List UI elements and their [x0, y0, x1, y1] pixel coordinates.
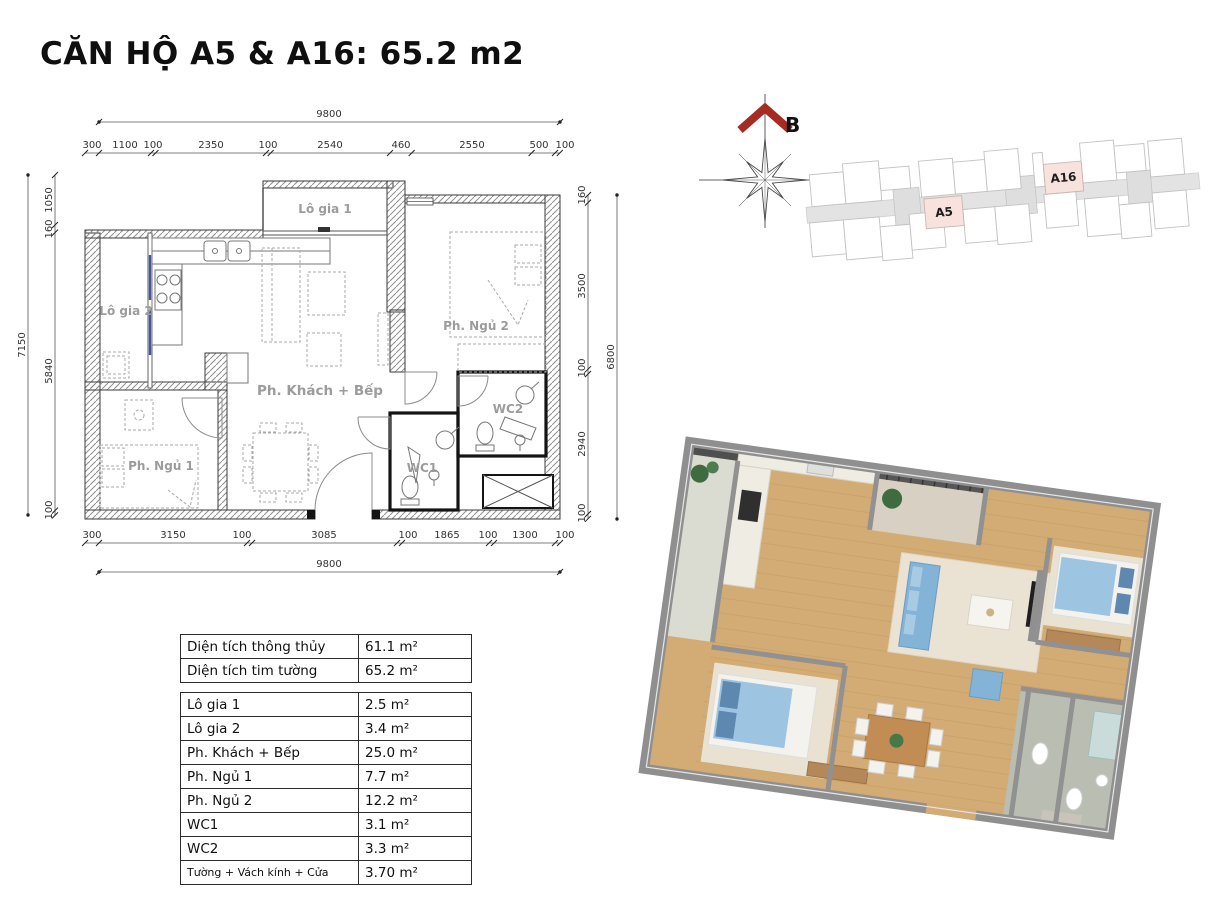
coffee-table [308, 272, 345, 315]
counter-island [227, 353, 248, 383]
area-value: 3.70 m² [359, 861, 472, 885]
slider-handle [318, 227, 330, 232]
svg-text:100: 100 [44, 500, 55, 519]
svg-text:1050: 1050 [44, 187, 55, 212]
svg-text:6800: 6800 [606, 344, 617, 369]
svg-text:7150: 7150 [18, 332, 28, 357]
svg-text:100: 100 [555, 140, 574, 151]
wardrobe [458, 344, 546, 372]
blanket-fold [168, 480, 196, 507]
area-value: 65.2 m² [359, 659, 472, 683]
area-value: 25.0 m² [359, 741, 472, 765]
area-value: 2.5 m² [359, 693, 472, 717]
room-label-wc1: WC1 [407, 461, 437, 475]
dim-top: 9800 300 1100 100 2350 100 2540 460 2550… [82, 109, 575, 156]
svg-text:2550: 2550 [459, 140, 484, 151]
kitchen [152, 238, 330, 383]
svg-text:5840: 5840 [44, 358, 55, 383]
area-label: Lô gia 2 [181, 717, 359, 741]
table-row: Diện tích thông thủy 61.1 m² [181, 635, 472, 659]
pillow [515, 267, 541, 285]
bed1-door [182, 398, 222, 438]
svg-text:100: 100 [478, 530, 497, 541]
svg-text:3085: 3085 [311, 530, 336, 541]
table-row: Lô gia 1 2.5 m² [181, 693, 472, 717]
svg-text:1100: 1100 [112, 140, 137, 151]
svg-text:3150: 3150 [160, 530, 185, 541]
bed2-door [405, 372, 437, 404]
area-label: WC2 [181, 837, 359, 861]
svg-text:460: 460 [391, 140, 410, 151]
area-label: Ph. Ngủ 2 [181, 789, 359, 813]
svg-text:2940: 2940 [577, 431, 588, 456]
svg-text:3500: 3500 [577, 273, 588, 298]
door-stop [307, 510, 315, 519]
area-value: 61.1 m² [359, 635, 472, 659]
area-label: Tường + Vách kính + Cửa [181, 861, 359, 885]
room-label-logia2: Lô gia 2 [99, 304, 152, 318]
room-label-wc2: WC2 [493, 402, 523, 416]
area-value: 7.7 m² [359, 765, 472, 789]
pillow [102, 448, 124, 466]
armchair [307, 333, 341, 366]
area-value: 12.2 m² [359, 789, 472, 813]
wc2-door [458, 376, 488, 406]
dining-table [253, 433, 308, 491]
door-stop [372, 510, 380, 519]
svg-text:100: 100 [398, 530, 417, 541]
area-value: 3.3 m² [359, 837, 472, 861]
room-label-logia1: Lô gia 1 [298, 202, 351, 216]
room-label-bed2: Ph. Ngủ 2 [443, 319, 509, 333]
tv [378, 313, 388, 365]
sink-basin [228, 241, 250, 261]
svg-text:2350: 2350 [198, 140, 223, 151]
area-label: Ph. Ngủ 1 [181, 765, 359, 789]
svg-text:160: 160 [577, 185, 588, 204]
svg-text:100: 100 [258, 140, 277, 151]
unit-a5-label: A5 [935, 204, 954, 219]
table-row: WC2 3.3 m² [181, 837, 472, 861]
table-row: Tường + Vách kính + Cửa 3.70 m² [181, 861, 472, 885]
area-value: 3.4 m² [359, 717, 472, 741]
wet-rooms [390, 372, 553, 510]
floor-plan-2d: 9800 300 1100 100 2350 100 2540 460 2550… [18, 95, 643, 605]
sink-basin [204, 241, 226, 261]
svg-text:500: 500 [529, 140, 548, 151]
cooktop [738, 490, 762, 522]
svg-text:300: 300 [82, 530, 101, 541]
site-plan: A5 A16 [798, 128, 1209, 273]
svg-text:100: 100 [232, 530, 251, 541]
area-label: Ph. Khách + Bếp [181, 741, 359, 765]
room-label-bed1: Ph. Ngủ 1 [128, 459, 194, 473]
bath-screen-wc2 [500, 417, 536, 440]
pillow [515, 245, 541, 263]
page-title: CĂN HỘ A5 & A16: 65.2 m2 [40, 36, 524, 72]
wc1-door [358, 417, 390, 449]
area-label: Diện tích tim tường [181, 659, 359, 683]
area-summary-table: Diện tích thông thủy 61.1 m² Diện tích t… [180, 634, 472, 683]
toilet-wc2 [477, 422, 493, 444]
svg-text:2540: 2540 [317, 140, 342, 151]
room-label-living: Ph. Khách + Bếp [257, 382, 383, 399]
armchair-3d [969, 669, 1003, 701]
svg-text:160: 160 [44, 219, 55, 238]
svg-text:1300: 1300 [512, 530, 537, 541]
entrance-door [315, 453, 372, 510]
svg-text:100: 100 [577, 503, 588, 522]
page: CĂN HỘ A5 & A16: 65.2 m2 9800 300 1100 1… [0, 0, 1209, 910]
area-value: 3.1 m² [359, 813, 472, 837]
table-row: Diện tích tim tường 65.2 m² [181, 659, 472, 683]
svg-text:100: 100 [577, 358, 588, 377]
table-row: Ph. Ngủ 2 12.2 m² [181, 789, 472, 813]
svg-text:9800: 9800 [316, 559, 341, 570]
pillow [102, 469, 124, 487]
area-rooms-table: Lô gia 1 2.5 m² Lô gia 2 3.4 m² Ph. Khác… [180, 692, 472, 885]
area-label: Diện tích thông thủy [181, 635, 359, 659]
svg-text:300: 300 [82, 140, 101, 151]
desk [125, 400, 153, 430]
svg-text:100: 100 [143, 140, 162, 151]
area-table: Diện tích thông thủy 61.1 m² Diện tích t… [180, 634, 472, 885]
dim-bottom: 300 3150 100 3085 100 1865 100 1300 100 … [82, 530, 575, 575]
bed1-bed [100, 445, 198, 508]
table-row: Lô gia 2 3.4 m² [181, 717, 472, 741]
unit-a16-label: A16 [1050, 170, 1077, 186]
svg-text:1865: 1865 [434, 530, 459, 541]
table-row: WC1 3.1 m² [181, 813, 472, 837]
table-row: Ph. Khách + Bếp 25.0 m² [181, 741, 472, 765]
area-label: Lô gia 1 [181, 693, 359, 717]
dim-left: 7150 1050 160 5840 100 [18, 172, 58, 520]
render-3d [612, 418, 1209, 910]
area-label: WC1 [181, 813, 359, 837]
table-row: Ph. Ngủ 1 7.7 m² [181, 765, 472, 789]
svg-text:100: 100 [555, 530, 574, 541]
dim-text: 9800 [316, 109, 341, 120]
